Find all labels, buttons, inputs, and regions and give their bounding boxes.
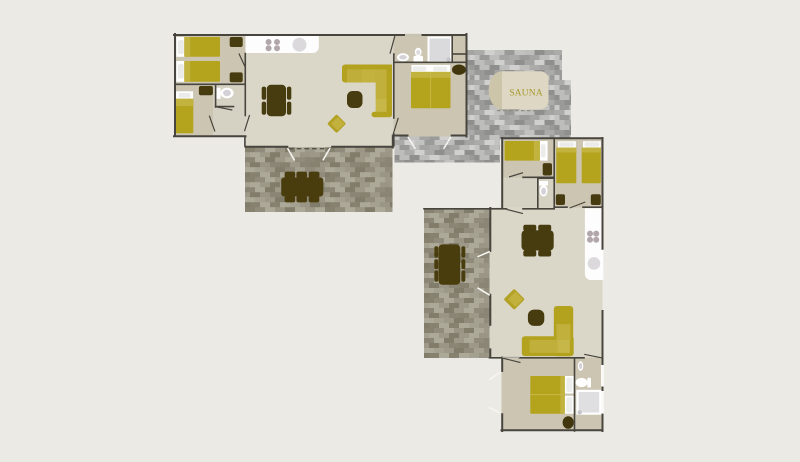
svg-text:SAUNA: SAUNA	[509, 87, 543, 98]
